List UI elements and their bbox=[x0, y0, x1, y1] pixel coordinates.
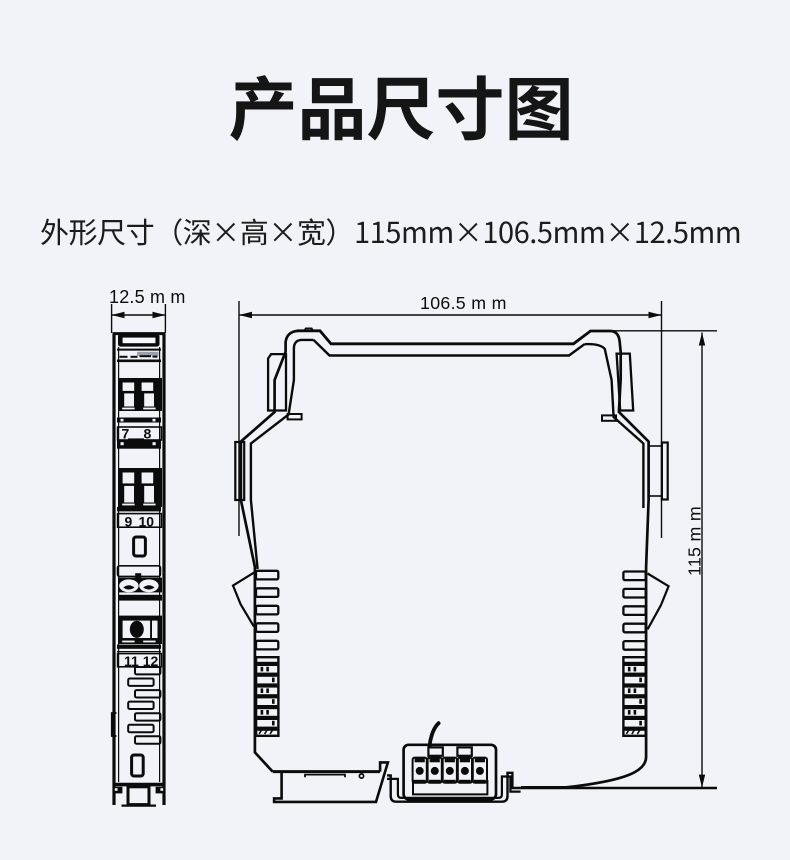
svg-text:9: 9 bbox=[125, 514, 133, 530]
svg-text:10: 10 bbox=[139, 514, 155, 530]
svg-text:106.5 m m: 106.5 m m bbox=[420, 293, 507, 313]
svg-text:8: 8 bbox=[144, 426, 152, 442]
svg-text:12.5 m m: 12.5 m m bbox=[109, 287, 186, 307]
